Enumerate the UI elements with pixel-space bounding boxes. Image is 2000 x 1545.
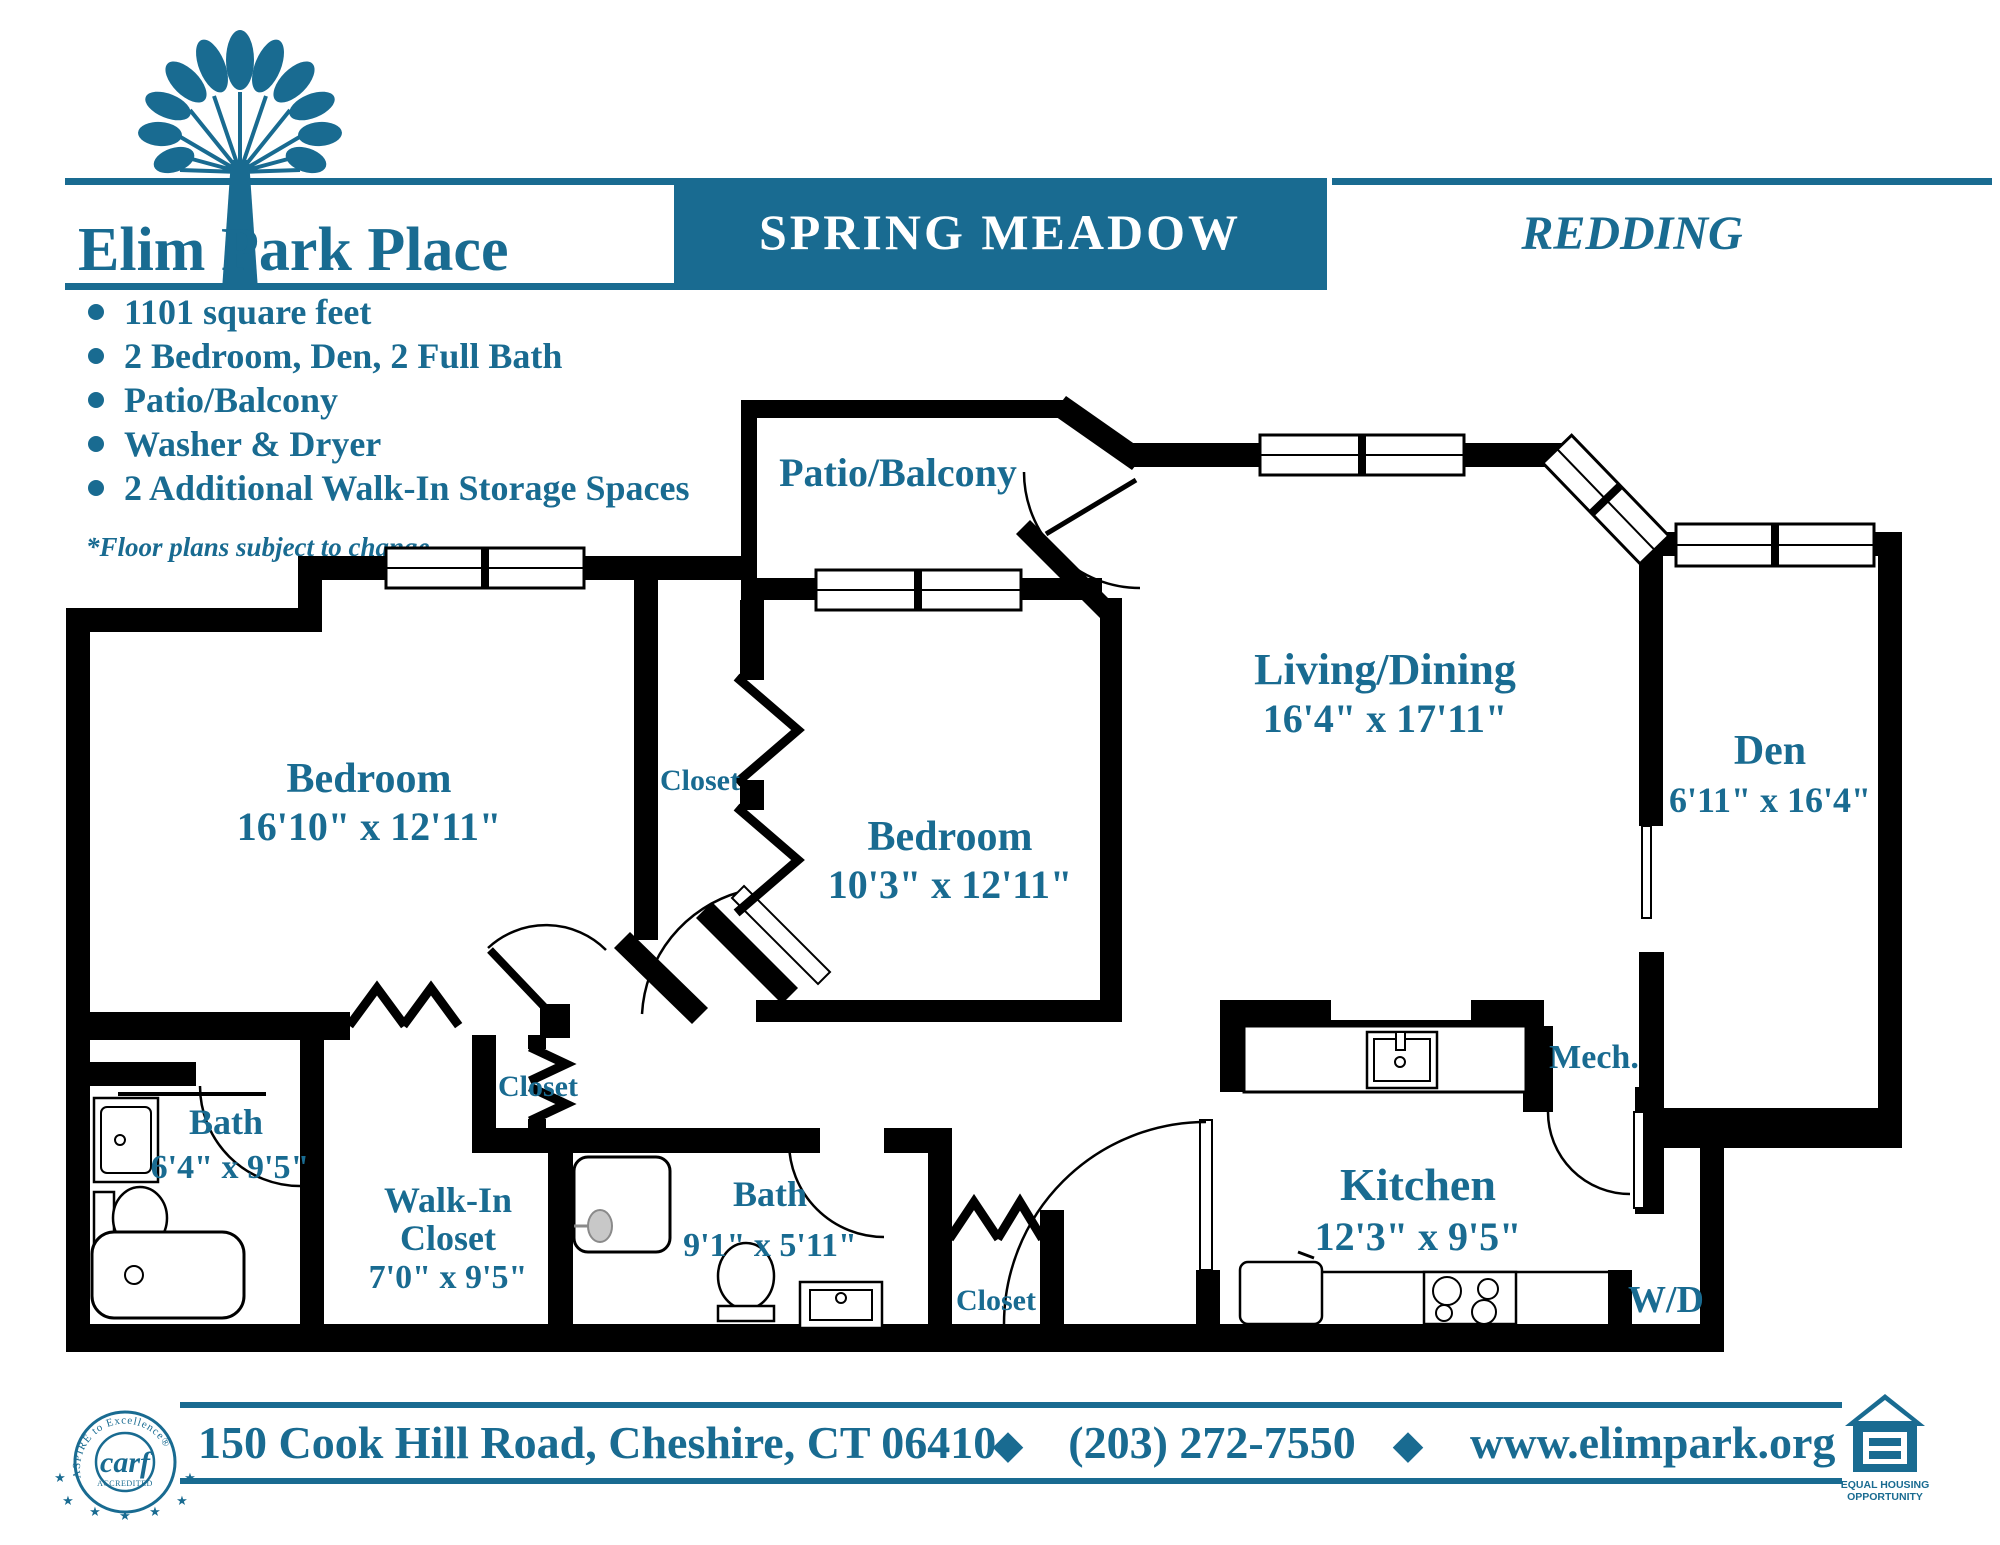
bath2-closet-label: Closet [956, 1284, 1036, 1317]
carf-star-icon: ★ [176, 1493, 188, 1508]
bullet-icon [88, 304, 104, 320]
bullet-icon [88, 436, 104, 452]
feature-list: 1101 square feet 2 Bedroom, Den, 2 Full … [86, 292, 689, 562]
banner-title: SPRING MEADOW [759, 204, 1241, 260]
window-bedroom1 [386, 548, 584, 588]
bullet-icon [88, 348, 104, 364]
footer-address: 150 Cook Hill Road, Cheshire, CT 06410 [198, 1417, 996, 1468]
bullet-icon [88, 392, 104, 408]
sink-drain-icon [1395, 1057, 1405, 1067]
header: Elim Park Place SPRING MEADOW REDDING [65, 30, 1992, 290]
carf-name: carf [100, 1446, 153, 1479]
dishwasher-icon [1240, 1262, 1322, 1324]
bedroom1-dims: 16'10" x 12'11" [237, 804, 501, 849]
feature-item: 1101 square feet [124, 292, 371, 332]
bath2-dims: 9'1" x 5'11" [683, 1227, 857, 1264]
header-rule-left [65, 178, 674, 185]
flyer-canvas: Elim Park Place SPRING MEADOW REDDING 11… [0, 0, 2000, 1545]
carf-star-icon: ★ [119, 1508, 131, 1523]
mech-label: Mech. [1549, 1039, 1639, 1076]
patio-label: Patio/Balcony [779, 450, 1017, 495]
burner-icon [1433, 1277, 1461, 1305]
patio-door-leaf [1046, 480, 1136, 534]
feature-item: 2 Bedroom, Den, 2 Full Bath [124, 336, 562, 376]
hall-diagonal-wall [614, 932, 708, 1024]
bedroom1-door-arc [488, 925, 606, 950]
walkin-bifold-icon [352, 988, 402, 1022]
kitchen-label: Kitchen [1340, 1159, 1496, 1210]
bath2-closet-door-icon [1000, 1202, 1040, 1235]
bath1-label: Bath [189, 1102, 263, 1142]
bedroom2-label: Bedroom [868, 814, 1033, 860]
logo-title: Elim Park Place [78, 216, 508, 284]
window-bay [1543, 435, 1669, 563]
kitchen-passthrough [1331, 1000, 1471, 1020]
carf-star-icon: ★ [54, 1470, 66, 1485]
footer-separator-icon: ◆ [1393, 1422, 1424, 1467]
carf-star-icon: ★ [184, 1470, 196, 1485]
feature-item: 2 Additional Walk-In Storage Spaces [124, 468, 689, 508]
walkin-label-line2: Closet [400, 1218, 496, 1258]
walkin-label-line1: Walk-In [384, 1180, 512, 1220]
eho-caption-line2: OPPORTUNITY [1847, 1491, 1923, 1503]
walkin-bifold-icon [406, 988, 456, 1022]
burner-icon [1472, 1300, 1496, 1324]
unit-name: REDDING [1520, 207, 1743, 260]
faucet-icon [1396, 1032, 1405, 1050]
bathtub-icon [92, 1232, 244, 1318]
kitchen-dims: 12'3" x 9'5" [1315, 1214, 1522, 1259]
living-label: Living/Dining [1254, 645, 1516, 694]
mech-door-arc [1548, 1112, 1630, 1194]
footer-rule-top [180, 1402, 1842, 1408]
feature-item: Patio/Balcony [124, 380, 338, 420]
header-rule-right [1332, 178, 1992, 185]
appliance-handle [1298, 1252, 1314, 1258]
bath2-label: Bath [733, 1174, 807, 1214]
bath1-dims: 6'4" x 9'5" [151, 1149, 310, 1186]
footer: ASPIRE to Excellence® carf ACCREDITED ★ … [54, 1394, 1929, 1523]
den-door-leaf [1642, 826, 1651, 918]
bath2-closet-door-icon [952, 1202, 996, 1235]
feature-item: Washer & Dryer [124, 424, 381, 464]
carf-star-icon: ★ [149, 1504, 161, 1519]
den-label: Den [1734, 728, 1806, 774]
footer-rule-bottom [180, 1478, 1842, 1484]
footer-separator-icon: ◆ [993, 1422, 1024, 1467]
tub-drain-icon [125, 1266, 143, 1284]
hall-closet-label: Closet [498, 1070, 578, 1103]
bedroom1-door-leaf [490, 950, 549, 1012]
carf-seal-icon: ASPIRE to Excellence® carf ACCREDITED ★ … [54, 1412, 196, 1523]
floorplan-flyer: Elim Park Place SPRING MEADOW REDDING 11… [0, 0, 2000, 1545]
burner-icon [1478, 1279, 1498, 1299]
carf-star-icon: ★ [89, 1504, 101, 1519]
faucet-icon [115, 1135, 125, 1145]
patio-door-jamb-wall [1016, 520, 1114, 618]
footer-phone: (203) 272-7550 [1068, 1417, 1355, 1468]
living-dims: 16'4" x 17'11" [1263, 696, 1507, 741]
eho-caption-line1: EQUAL HOUSING [1841, 1479, 1929, 1491]
kitchen-door-leaf [1200, 1120, 1212, 1270]
carf-accredited: ACCREDITED [97, 1479, 153, 1488]
shower-knob-icon [588, 1210, 612, 1242]
carf-star-icon: ★ [62, 1493, 74, 1508]
footer-website: www.elimpark.org [1470, 1417, 1835, 1468]
faucet-icon [836, 1293, 846, 1303]
logo-underline [65, 283, 674, 290]
bedroom2-closet-door-icon [740, 680, 798, 780]
bullet-icon [88, 480, 104, 496]
burner-icon [1436, 1305, 1452, 1321]
bedroom2-closet-label: Closet [660, 764, 740, 797]
den-dims: 6'11" x 16'4" [1669, 780, 1871, 820]
tree-logo-icon [137, 30, 343, 178]
bedroom2-dims: 10'3" x 12'11" [828, 862, 1072, 907]
equal-housing-icon: EQUAL HOUSING OPPORTUNITY [1841, 1394, 1929, 1503]
window-den [1676, 524, 1874, 566]
walkin-dims: 7'0" x 9'5" [369, 1259, 528, 1296]
bedroom1-label: Bedroom [287, 756, 452, 802]
patio-corner-wall [1052, 396, 1146, 470]
wd-label: W/D [1628, 1279, 1704, 1321]
window-living [1260, 435, 1464, 475]
mech-door-leaf [1634, 1112, 1644, 1208]
shower-icon [574, 1157, 670, 1252]
toilet-tank-icon [718, 1306, 774, 1321]
bedroom2-door-wall [696, 902, 798, 1004]
window-patio [816, 570, 1021, 610]
